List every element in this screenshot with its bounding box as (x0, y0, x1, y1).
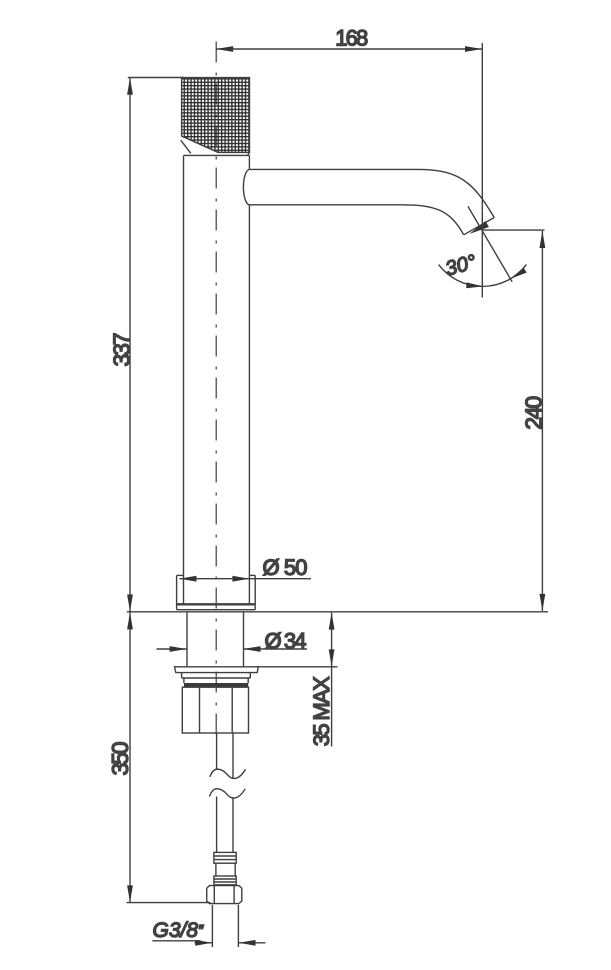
svg-text:168: 168 (335, 26, 368, 51)
svg-text:30°: 30° (443, 250, 479, 280)
svg-text:Ø 50: Ø 50 (263, 555, 308, 580)
svg-text:G3/8″: G3/8″ (153, 919, 205, 942)
svg-text:337: 337 (109, 333, 135, 367)
svg-text:240: 240 (520, 396, 546, 430)
svg-text:Ø 34: Ø 34 (265, 628, 307, 653)
svg-text:350: 350 (107, 742, 133, 776)
svg-text:35 MAX: 35 MAX (309, 676, 334, 746)
